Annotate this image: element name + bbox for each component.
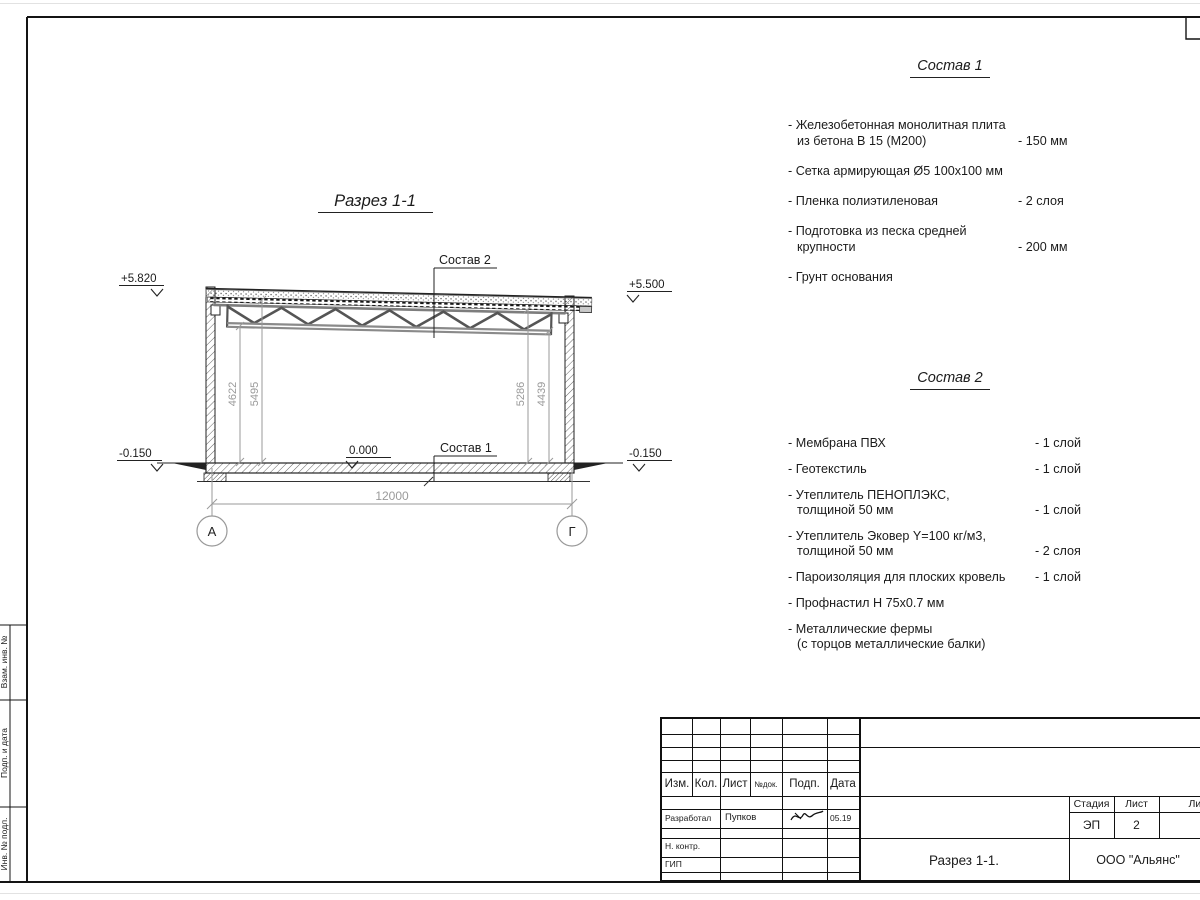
left-footing (204, 473, 226, 482)
corner-stamp-box (1186, 17, 1200, 39)
view-title: Разрез 1-1 (334, 192, 416, 210)
composition1-list: - Железобетонная монолитная плита из бет… (788, 117, 1100, 299)
tb-stage-label: Стадия (1069, 796, 1114, 812)
margin-label-vzam: Взам. инв. № (0, 636, 9, 689)
composition2-title: Состав 2 (910, 370, 990, 390)
tb-header-list: Лист (720, 772, 750, 796)
tb-header-podp: Подп. (782, 772, 827, 796)
list-item: - Подготовка из песка средней крупности … (788, 223, 1100, 255)
composition2-list: - Мембрана ПВХ - 1 слой - Геотекстиль - … (788, 436, 1100, 663)
list-item: - Геотекстиль - 1 слой (788, 462, 1100, 477)
tb-header-izm: Изм. (662, 772, 692, 796)
signature-icon (787, 807, 825, 827)
list-item: - Железобетонная монолитная плита из бет… (788, 117, 1100, 149)
dim-right-inner: 5286 (515, 382, 527, 406)
list-item: - Пленка полиэтиленовая - 2 слоя (788, 193, 1100, 209)
tb-developed-label: Разработал (665, 813, 711, 823)
roof-assembly (205, 288, 592, 336)
elev-bottom-right: -0.150 (629, 448, 662, 460)
ground-wedge-right (574, 463, 608, 470)
dim-right-outer: 4439 (536, 382, 548, 406)
ground-wedge-left (172, 463, 206, 470)
dim-span: 12000 (375, 489, 409, 503)
list-item: - Утеплитель ПЕНОПЛЭКС, толщиной 50 мм -… (788, 488, 1100, 518)
list-item: - Мембрана ПВХ - 1 слой (788, 436, 1100, 451)
tb-doc-name: Разрез 1-1. (859, 838, 1069, 882)
tb-gip-label: ГИП (665, 859, 682, 869)
tb-company: ООО "Альянс" (1069, 838, 1200, 882)
vertical-dimensions (236, 296, 553, 466)
composition1-ref: Состав 1 (440, 441, 492, 455)
tb-developed-date: 05.19 (830, 813, 851, 823)
drawing-sheet: { "colors": { "ink": "#1b1b1b", "dim_gra… (0, 0, 1200, 900)
elev-top-left: +5.820 (121, 273, 157, 285)
tb-sheet-label: Лист (1114, 796, 1159, 812)
composition1-title: Состав 1 (910, 58, 990, 78)
list-item: - Профнастил Н 75х0.7 мм (788, 596, 1100, 611)
tb-stage-value: ЭП (1069, 812, 1114, 838)
margin-label-podp: Подп. и дата (0, 728, 9, 778)
tb-sheets-label: Листов (1159, 796, 1200, 812)
composition2-ref: Состав 2 (439, 253, 491, 267)
tb-ncontr-label: Н. контр. (665, 841, 700, 851)
elev-zero: 0.000 (349, 445, 378, 457)
right-footing (548, 473, 570, 482)
tb-header-data: Дата (827, 772, 859, 796)
axis-label-g: Г (568, 524, 575, 539)
tb-developed-name: Пупков (725, 812, 756, 823)
tb-sheet-value: 2 (1114, 812, 1159, 838)
list-item: - Грунт основания (788, 269, 1100, 285)
axis-label-a: А (208, 524, 217, 539)
floor-slab (157, 463, 623, 486)
dim-left-outer: 5495 (249, 382, 261, 406)
list-item: - Сетка армирующая Ø5 100х100 мм (788, 163, 1100, 179)
list-item: - Металлические фермы (с торцов металлич… (788, 622, 1100, 652)
tb-header-kol: Кол. (692, 772, 720, 796)
roof-end-cap (580, 306, 592, 312)
title-block: Изм. Кол. Лист №док. Подп. Дата Разработ… (660, 717, 1200, 882)
tb-header-ndok: №док. (750, 772, 782, 796)
left-bearing-pad (211, 305, 220, 315)
list-item: - Пароизоляция для плоских кровель - 1 с… (788, 570, 1100, 585)
dim-left-inner: 4622 (227, 382, 239, 406)
elev-top-right: +5.500 (629, 279, 665, 291)
list-item: - Утеплитель Эковер Y=100 кг/м3, толщино… (788, 529, 1100, 559)
elev-bottom-left: -0.150 (119, 448, 152, 460)
margin-label-inv: Инв. № подл. (0, 818, 9, 871)
